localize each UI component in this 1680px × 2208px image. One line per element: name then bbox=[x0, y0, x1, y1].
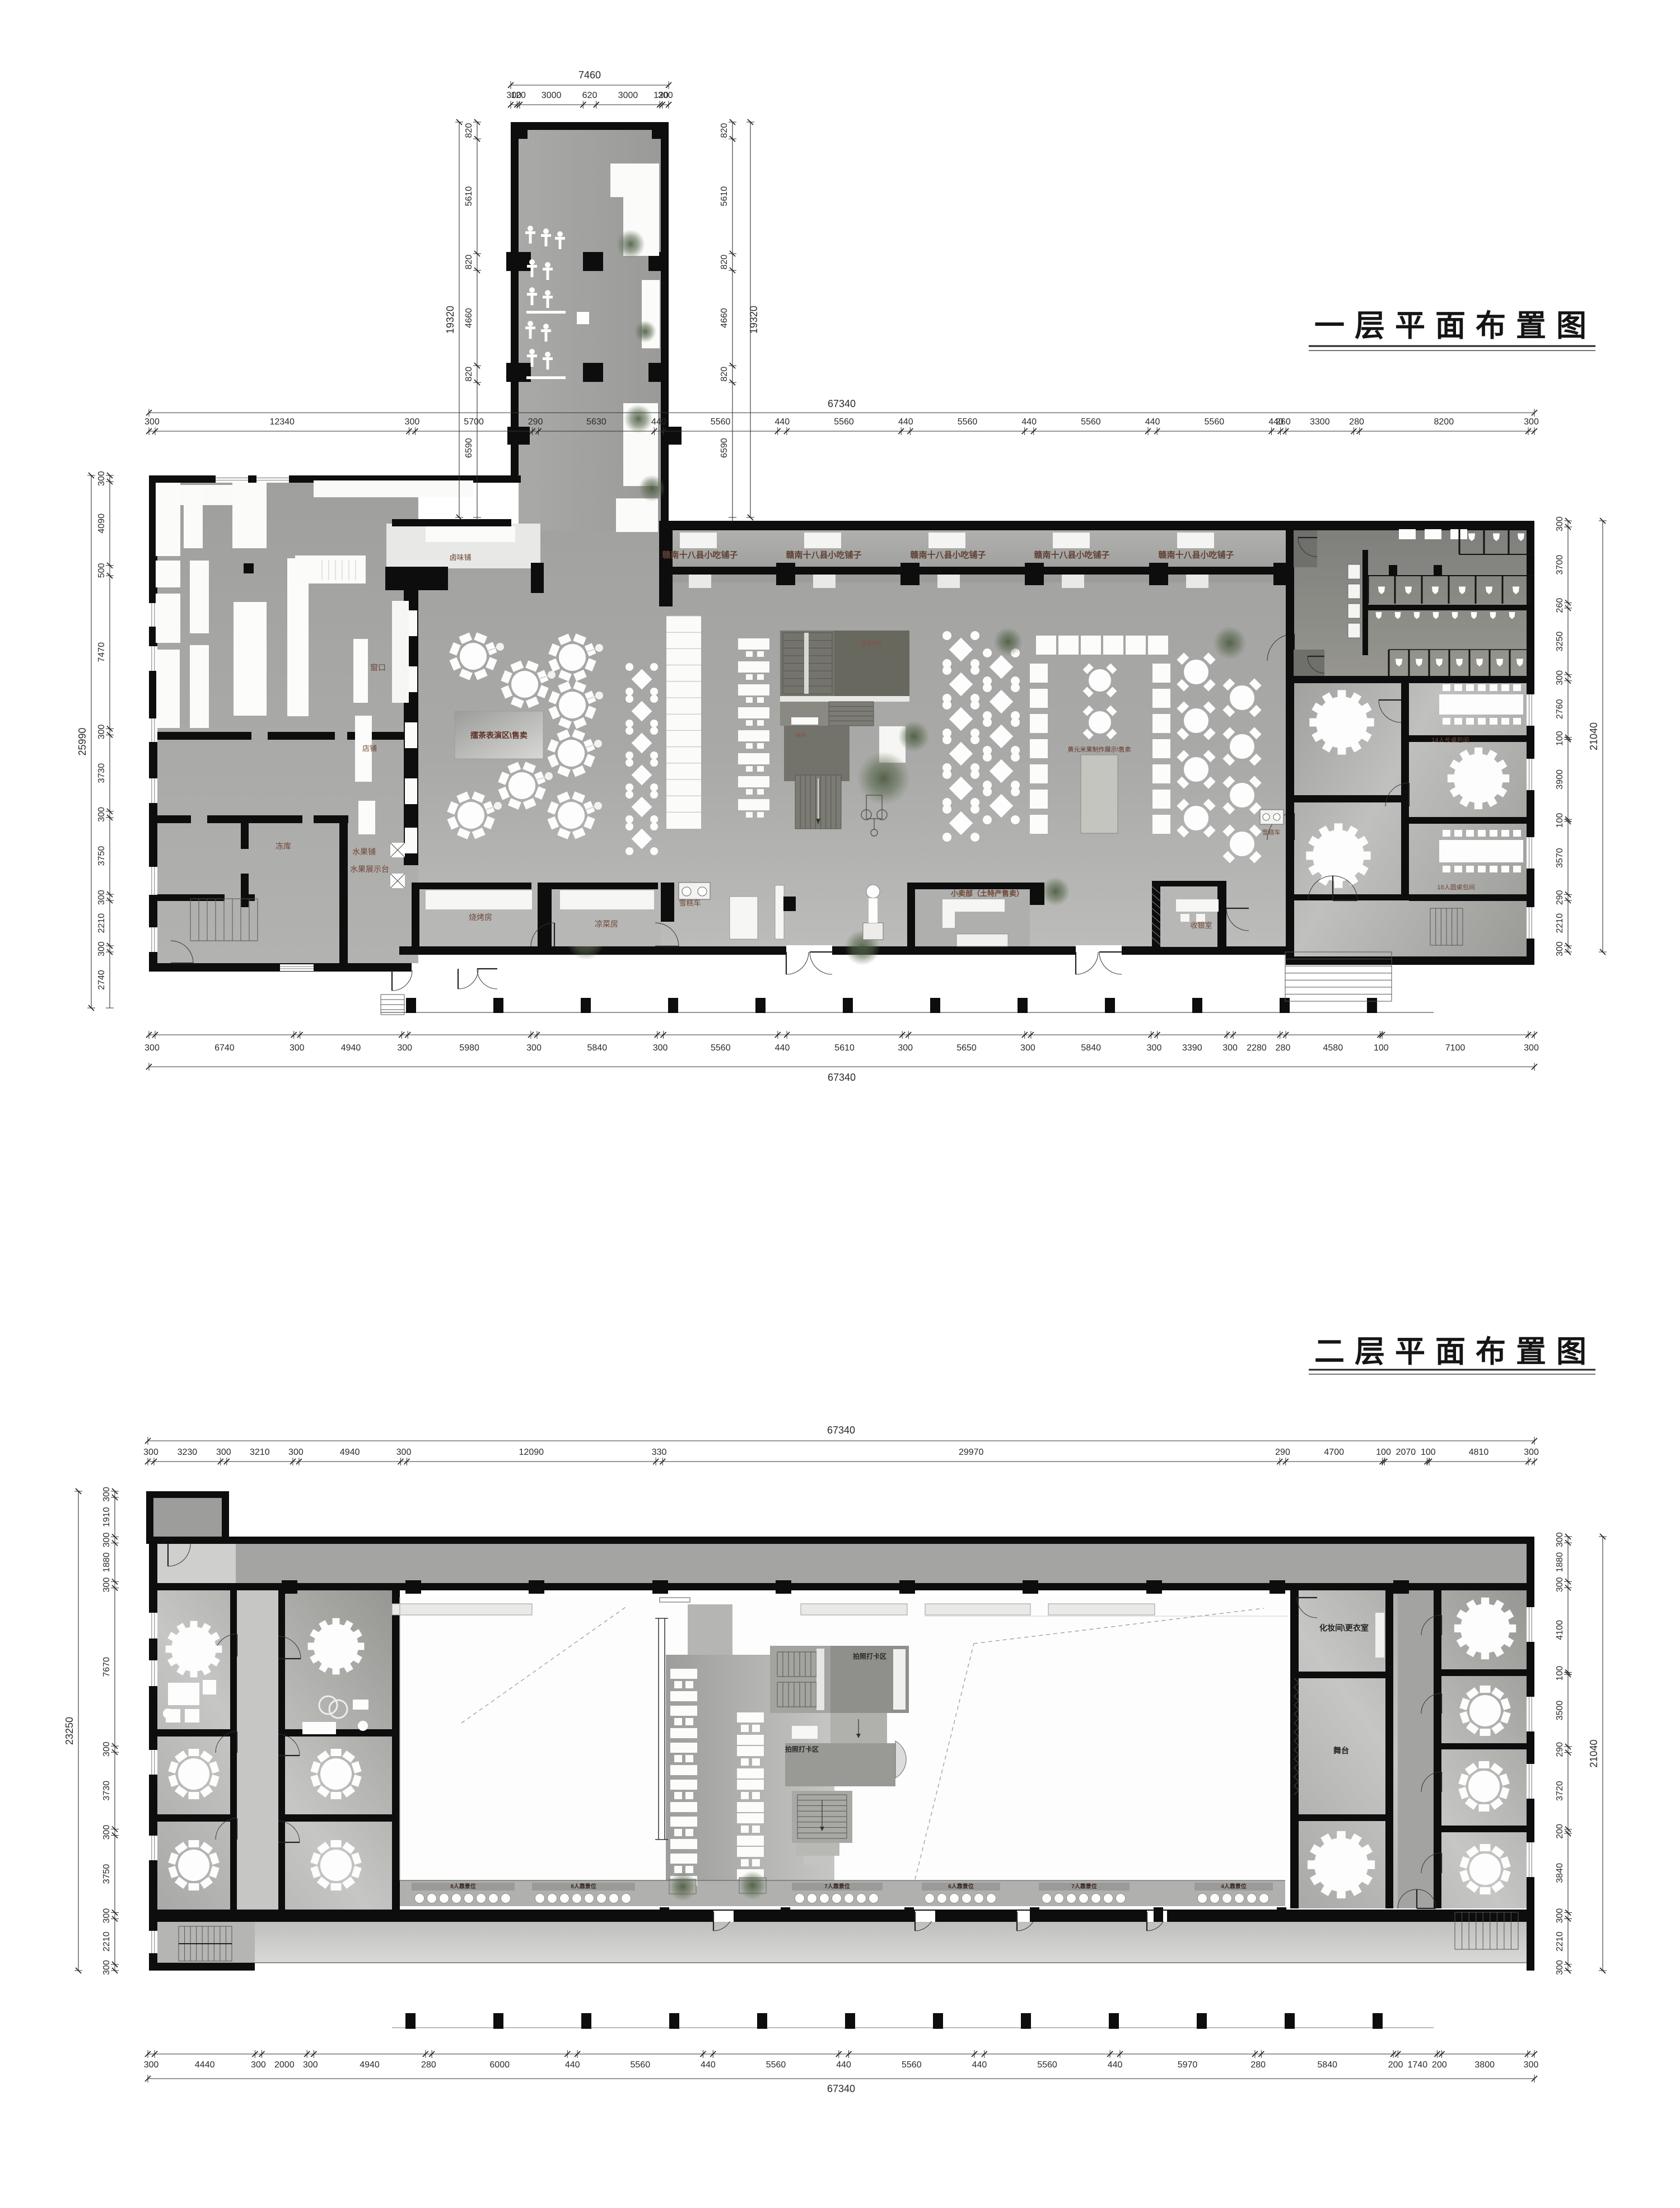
svg-text:5700: 5700 bbox=[464, 417, 484, 427]
svg-text:3750: 3750 bbox=[102, 1864, 111, 1884]
svg-text:5560: 5560 bbox=[958, 417, 978, 427]
svg-text:2210: 2210 bbox=[102, 1931, 111, 1952]
svg-text:4440: 4440 bbox=[195, 2060, 215, 2070]
svg-text:5560: 5560 bbox=[711, 417, 731, 427]
svg-text:拍照打卡区: 拍照打卡区 bbox=[785, 1745, 819, 1753]
svg-text:440: 440 bbox=[898, 417, 913, 427]
svg-text:8人靠景位: 8人靠景位 bbox=[450, 1883, 476, 1890]
svg-text:18人圆桌包间: 18人圆桌包间 bbox=[1437, 884, 1474, 891]
svg-text:820: 820 bbox=[720, 367, 729, 382]
svg-text:4100: 4100 bbox=[1555, 1620, 1565, 1640]
svg-text:19320: 19320 bbox=[748, 306, 759, 334]
svg-text:440: 440 bbox=[1021, 417, 1037, 427]
svg-text:25990: 25990 bbox=[77, 727, 88, 755]
svg-text:拍照打卡区: 拍照打卡区 bbox=[853, 1652, 886, 1660]
svg-text:290: 290 bbox=[1555, 1742, 1565, 1757]
svg-text:3730: 3730 bbox=[102, 1781, 111, 1801]
svg-text:2280: 2280 bbox=[1247, 1043, 1267, 1053]
svg-text:小卖部（土特产售卖）: 小卖部（土特产售卖） bbox=[951, 889, 1024, 898]
svg-text:7670: 7670 bbox=[102, 1657, 111, 1677]
svg-text:2740: 2740 bbox=[97, 970, 106, 990]
svg-text:店铺: 店铺 bbox=[362, 744, 377, 753]
svg-text:5560: 5560 bbox=[834, 417, 854, 427]
svg-text:820: 820 bbox=[464, 367, 474, 382]
svg-text:冻库: 冻库 bbox=[276, 842, 291, 851]
svg-text:3230: 3230 bbox=[178, 1448, 198, 1457]
svg-text:擂茶表演区\售卖: 擂茶表演区\售卖 bbox=[470, 731, 528, 740]
svg-text:300: 300 bbox=[288, 1448, 304, 1457]
svg-text:卤味铺: 卤味铺 bbox=[449, 553, 471, 562]
svg-text:5980: 5980 bbox=[459, 1043, 479, 1053]
svg-text:5610: 5610 bbox=[720, 186, 729, 207]
svg-text:300: 300 bbox=[102, 1825, 111, 1840]
svg-text:4810: 4810 bbox=[1469, 1448, 1489, 1457]
svg-text:300: 300 bbox=[1524, 1043, 1539, 1053]
svg-text:5630: 5630 bbox=[586, 417, 606, 427]
svg-text:440: 440 bbox=[701, 2060, 716, 2070]
svg-text:3250: 3250 bbox=[1555, 632, 1565, 652]
svg-text:300: 300 bbox=[97, 807, 106, 822]
svg-text:烧烤房: 烧烤房 bbox=[469, 913, 492, 922]
svg-text:舞台: 舞台 bbox=[1333, 1746, 1349, 1755]
svg-text:300: 300 bbox=[1555, 670, 1565, 685]
svg-text:7460: 7460 bbox=[578, 69, 601, 81]
svg-text:4660: 4660 bbox=[464, 308, 474, 328]
svg-text:300: 300 bbox=[658, 91, 673, 100]
svg-text:5560: 5560 bbox=[711, 1043, 731, 1053]
svg-text:280: 280 bbox=[1276, 1043, 1291, 1053]
svg-text:300: 300 bbox=[97, 471, 106, 486]
svg-text:8人靠景位: 8人靠景位 bbox=[571, 1883, 596, 1890]
svg-text:300: 300 bbox=[97, 941, 106, 956]
svg-text:300: 300 bbox=[653, 1043, 668, 1053]
svg-text:4660: 4660 bbox=[720, 308, 729, 328]
svg-text:300: 300 bbox=[97, 724, 106, 739]
svg-text:14人长桌包间: 14人长桌包间 bbox=[1431, 736, 1469, 744]
svg-text:2760: 2760 bbox=[1555, 699, 1565, 719]
svg-text:观景电梯: 观景电梯 bbox=[861, 640, 881, 646]
svg-text:3700: 3700 bbox=[1555, 555, 1565, 575]
svg-text:黄元米果制作展示\售卖: 黄元米果制作展示\售卖 bbox=[1067, 745, 1131, 753]
svg-text:620: 620 bbox=[582, 91, 598, 100]
svg-text:440: 440 bbox=[972, 2060, 987, 2070]
svg-text:300: 300 bbox=[1555, 941, 1565, 956]
svg-text:6590: 6590 bbox=[720, 438, 729, 458]
svg-text:300: 300 bbox=[102, 1908, 111, 1924]
svg-text:300: 300 bbox=[102, 1742, 111, 1757]
svg-text:300: 300 bbox=[290, 1043, 305, 1053]
svg-text:5840: 5840 bbox=[587, 1043, 608, 1053]
svg-text:1880: 1880 bbox=[102, 1552, 111, 1572]
svg-text:6000: 6000 bbox=[489, 2060, 510, 2070]
svg-text:440: 440 bbox=[836, 2060, 851, 2070]
svg-text:3000: 3000 bbox=[618, 91, 638, 100]
svg-text:100: 100 bbox=[1555, 1666, 1565, 1681]
svg-text:290: 290 bbox=[1275, 1448, 1290, 1457]
svg-text:67340: 67340 bbox=[827, 1425, 855, 1436]
svg-text:3000: 3000 bbox=[542, 91, 562, 100]
svg-text:440: 440 bbox=[1108, 2060, 1123, 2070]
svg-text:3800: 3800 bbox=[1474, 2060, 1495, 2070]
svg-text:7470: 7470 bbox=[97, 642, 106, 662]
svg-text:300: 300 bbox=[303, 2060, 318, 2070]
svg-text:3570: 3570 bbox=[1555, 848, 1565, 868]
svg-text:5840: 5840 bbox=[1317, 2060, 1337, 2070]
svg-text:擂茶: 擂茶 bbox=[796, 732, 806, 738]
svg-text:67340: 67340 bbox=[827, 2083, 855, 2094]
svg-text:5560: 5560 bbox=[1081, 417, 1101, 427]
svg-text:100: 100 bbox=[1555, 731, 1565, 746]
svg-text:300: 300 bbox=[1524, 2060, 1539, 2070]
svg-text:6人靠景位: 6人靠景位 bbox=[948, 1883, 974, 1890]
svg-text:300: 300 bbox=[97, 890, 106, 905]
svg-text:440: 440 bbox=[565, 2060, 580, 2070]
svg-text:2000: 2000 bbox=[274, 2060, 295, 2070]
svg-text:2210: 2210 bbox=[1555, 913, 1565, 933]
svg-text:200: 200 bbox=[1432, 2060, 1447, 2070]
svg-text:300: 300 bbox=[143, 1448, 158, 1457]
svg-text:赣南十八县小吃铺子: 赣南十八县小吃铺子 bbox=[786, 550, 861, 560]
svg-text:300: 300 bbox=[144, 2060, 159, 2070]
svg-text:21040: 21040 bbox=[1588, 1739, 1599, 1767]
svg-text:23250: 23250 bbox=[64, 1717, 75, 1745]
svg-text:21040: 21040 bbox=[1588, 722, 1599, 750]
svg-text:5610: 5610 bbox=[464, 186, 474, 207]
svg-text:4940: 4940 bbox=[340, 1448, 360, 1457]
svg-text:300: 300 bbox=[216, 1448, 231, 1457]
svg-text:收银室: 收银室 bbox=[1190, 921, 1212, 930]
svg-text:窗口: 窗口 bbox=[370, 663, 386, 672]
svg-text:300: 300 bbox=[1555, 1532, 1565, 1547]
svg-text:280: 280 bbox=[421, 2060, 436, 2070]
svg-text:500: 500 bbox=[97, 563, 106, 578]
svg-text:19320: 19320 bbox=[445, 306, 456, 334]
svg-text:440: 440 bbox=[651, 417, 666, 427]
svg-text:300: 300 bbox=[405, 417, 420, 427]
svg-text:300: 300 bbox=[1555, 1908, 1565, 1924]
svg-text:赣南十八县小吃铺子: 赣南十八县小吃铺子 bbox=[1158, 550, 1234, 560]
svg-text:3730: 3730 bbox=[97, 763, 106, 783]
svg-text:4940: 4940 bbox=[341, 1043, 361, 1053]
svg-text:3300: 3300 bbox=[1310, 417, 1330, 427]
svg-text:3840: 3840 bbox=[1555, 1863, 1565, 1883]
svg-text:300: 300 bbox=[102, 1487, 111, 1502]
svg-text:300: 300 bbox=[1147, 1043, 1162, 1053]
svg-text:300: 300 bbox=[1555, 1577, 1565, 1592]
svg-text:820: 820 bbox=[720, 123, 729, 138]
svg-text:300: 300 bbox=[102, 1532, 111, 1547]
svg-text:5560: 5560 bbox=[1205, 417, 1225, 427]
svg-text:5560: 5560 bbox=[766, 2060, 786, 2070]
svg-text:雪糕车: 雪糕车 bbox=[679, 899, 701, 907]
svg-text:水果铺: 水果铺 bbox=[352, 847, 376, 856]
svg-text:7人靠景位: 7人靠景位 bbox=[1071, 1883, 1097, 1890]
svg-text:赣南十八县小吃铺子: 赣南十八县小吃铺子 bbox=[1034, 550, 1109, 560]
svg-text:300: 300 bbox=[1524, 417, 1539, 427]
svg-text:5610: 5610 bbox=[834, 1043, 855, 1053]
svg-text:4700: 4700 bbox=[1324, 1448, 1344, 1457]
svg-text:300: 300 bbox=[898, 1043, 913, 1053]
svg-text:3750: 3750 bbox=[97, 846, 106, 866]
svg-text:330: 330 bbox=[652, 1448, 667, 1457]
svg-text:300: 300 bbox=[251, 2060, 266, 2070]
svg-text:820: 820 bbox=[720, 254, 729, 269]
svg-text:300: 300 bbox=[397, 1043, 412, 1053]
svg-text:260: 260 bbox=[1276, 417, 1291, 427]
svg-text:67340: 67340 bbox=[828, 398, 856, 409]
svg-text:100: 100 bbox=[1374, 1043, 1389, 1053]
svg-text:4人靠景位: 4人靠景位 bbox=[1221, 1883, 1247, 1890]
svg-text:300: 300 bbox=[526, 1043, 542, 1053]
svg-text:4090: 4090 bbox=[97, 514, 106, 534]
svg-text:100: 100 bbox=[1555, 813, 1565, 828]
svg-text:3390: 3390 bbox=[1182, 1043, 1202, 1053]
svg-text:300: 300 bbox=[144, 1043, 160, 1053]
svg-text:5560: 5560 bbox=[1037, 2060, 1057, 2070]
svg-text:3500: 3500 bbox=[1555, 1701, 1565, 1721]
svg-text:3900: 3900 bbox=[1555, 769, 1565, 790]
svg-text:29970: 29970 bbox=[959, 1448, 984, 1457]
svg-text:凉菜房: 凉菜房 bbox=[595, 919, 618, 928]
svg-text:100: 100 bbox=[1376, 1448, 1391, 1457]
svg-text:5560: 5560 bbox=[902, 2060, 922, 2070]
svg-text:赣南十八县小吃铺子: 赣南十八县小吃铺子 bbox=[910, 550, 986, 560]
svg-text:300: 300 bbox=[1555, 1960, 1565, 1975]
svg-text:120: 120 bbox=[511, 91, 526, 100]
svg-text:290: 290 bbox=[1555, 890, 1565, 905]
svg-text:280: 280 bbox=[1349, 417, 1364, 427]
svg-text:8200: 8200 bbox=[1434, 417, 1454, 427]
svg-text:300: 300 bbox=[102, 1577, 111, 1593]
svg-text:5560: 5560 bbox=[631, 2060, 651, 2070]
svg-text:1910: 1910 bbox=[102, 1507, 111, 1527]
svg-text:440: 440 bbox=[1145, 417, 1160, 427]
svg-text:67340: 67340 bbox=[828, 1072, 856, 1083]
svg-text:5970: 5970 bbox=[1178, 2060, 1198, 2070]
svg-text:5840: 5840 bbox=[1081, 1043, 1101, 1053]
svg-text:440: 440 bbox=[775, 1043, 790, 1053]
svg-text:6590: 6590 bbox=[464, 438, 474, 458]
svg-text:300: 300 bbox=[1222, 1043, 1238, 1053]
svg-text:水果展示台: 水果展示台 bbox=[350, 865, 389, 874]
svg-text:290: 290 bbox=[528, 417, 543, 427]
svg-text:2070: 2070 bbox=[1396, 1448, 1416, 1457]
svg-text:12340: 12340 bbox=[269, 417, 295, 427]
svg-text:3210: 3210 bbox=[250, 1448, 270, 1457]
svg-text:100: 100 bbox=[1421, 1448, 1436, 1457]
svg-text:4580: 4580 bbox=[1323, 1043, 1343, 1053]
svg-text:300: 300 bbox=[1524, 1448, 1539, 1457]
svg-text:7100: 7100 bbox=[1445, 1043, 1466, 1053]
svg-text:12090: 12090 bbox=[519, 1448, 544, 1457]
svg-text:300: 300 bbox=[1020, 1043, 1035, 1053]
svg-text:300: 300 bbox=[1555, 516, 1565, 531]
svg-text:300: 300 bbox=[102, 1960, 111, 1975]
svg-text:二层平面布置图: 二层平面布置图 bbox=[1314, 1335, 1597, 1369]
svg-text:440: 440 bbox=[774, 417, 790, 427]
svg-text:化妆间\更衣室: 化妆间\更衣室 bbox=[1319, 1623, 1369, 1632]
svg-text:6740: 6740 bbox=[214, 1043, 235, 1053]
svg-text:5650: 5650 bbox=[956, 1043, 977, 1053]
svg-text:4940: 4940 bbox=[360, 2060, 380, 2070]
svg-text:200: 200 bbox=[1555, 1824, 1565, 1839]
svg-text:7人靠景位: 7人靠景位 bbox=[824, 1883, 850, 1890]
svg-text:280: 280 bbox=[1250, 2060, 1266, 2070]
svg-text:2210: 2210 bbox=[97, 913, 106, 933]
svg-text:赣南十八县小吃铺子: 赣南十八县小吃铺子 bbox=[662, 550, 738, 560]
svg-text:300: 300 bbox=[396, 1448, 412, 1457]
svg-text:260: 260 bbox=[1555, 598, 1565, 613]
svg-text:2210: 2210 bbox=[1555, 1931, 1565, 1952]
svg-text:200: 200 bbox=[1388, 2060, 1403, 2070]
svg-text:300: 300 bbox=[144, 417, 160, 427]
svg-text:3720: 3720 bbox=[1555, 1781, 1565, 1801]
svg-text:一层平面布置图: 一层平面布置图 bbox=[1314, 309, 1597, 343]
svg-text:雪糕车: 雪糕车 bbox=[1262, 828, 1281, 836]
svg-text:1740: 1740 bbox=[1408, 2060, 1428, 2070]
svg-text:820: 820 bbox=[464, 123, 474, 138]
svg-text:820: 820 bbox=[464, 254, 474, 269]
svg-text:1880: 1880 bbox=[1555, 1552, 1565, 1572]
